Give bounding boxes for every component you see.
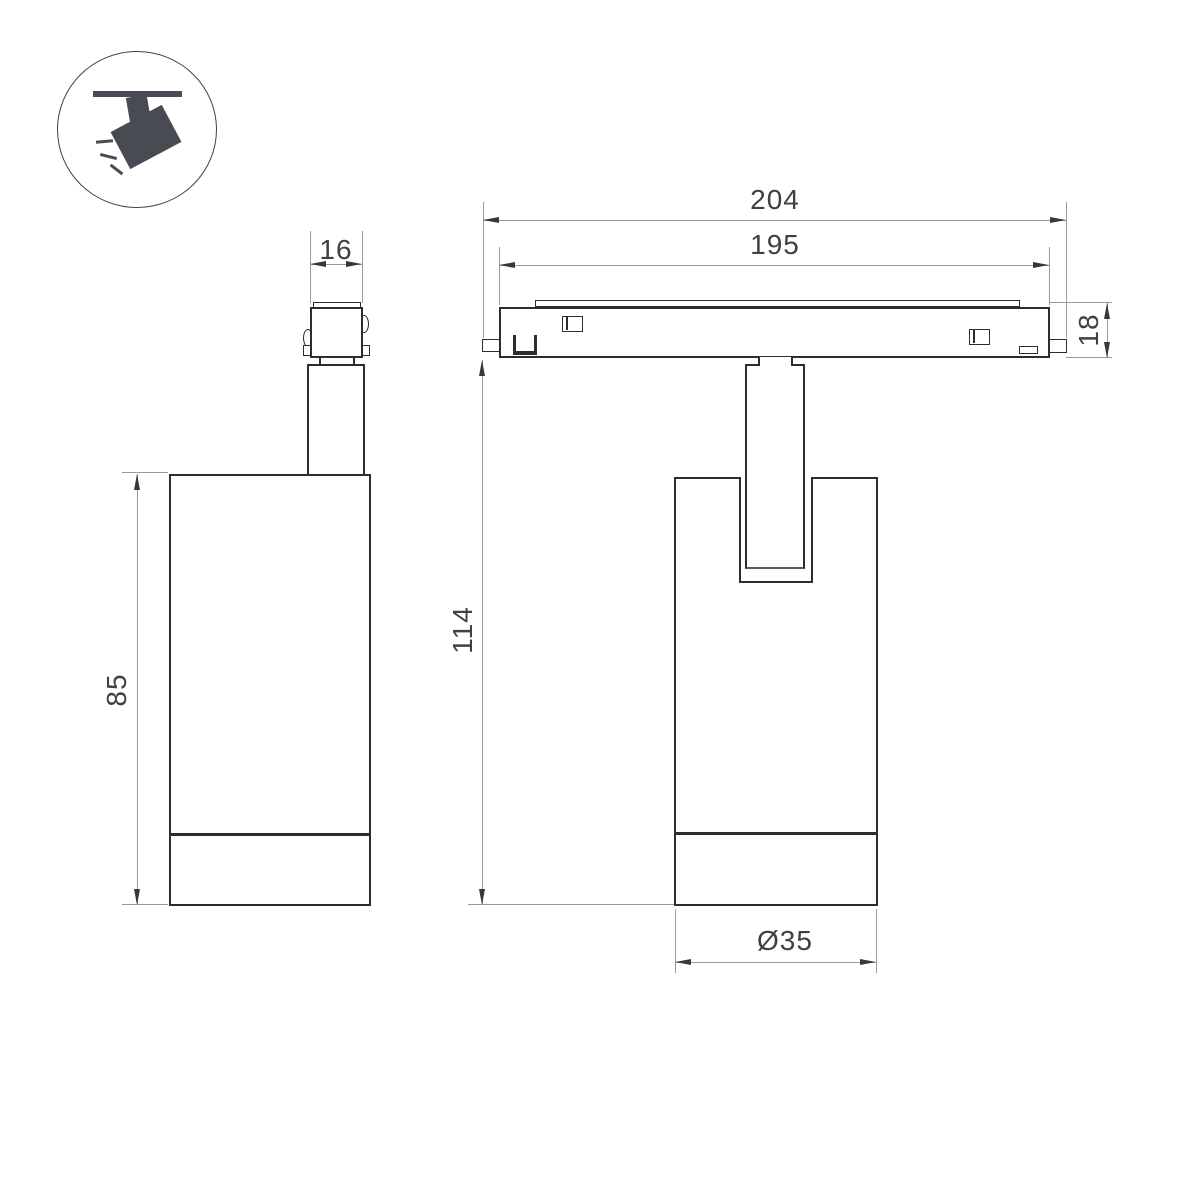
arrowhead bbox=[860, 959, 876, 965]
track-top-plate-side bbox=[535, 300, 1020, 307]
track-u-contact-detail bbox=[513, 335, 537, 355]
arrowhead bbox=[479, 360, 485, 376]
arrowhead bbox=[675, 959, 691, 965]
lamp-body-front bbox=[169, 474, 371, 906]
dimension-line-195 bbox=[499, 265, 1049, 266]
arrowhead bbox=[483, 217, 499, 223]
track-square-detail-left bbox=[562, 316, 583, 332]
track-flat-detail-right bbox=[1019, 346, 1038, 354]
swivel-neck-side bbox=[758, 357, 793, 366]
dimension-line-35 bbox=[675, 962, 876, 963]
dimension-line-85 bbox=[137, 474, 138, 904]
dimension-line-114 bbox=[482, 360, 483, 905]
technical-drawing-canvas: 16 85 204 195 bbox=[0, 0, 1200, 1200]
dim-label-overall-height: 114 bbox=[449, 606, 477, 654]
dim-label-total-length: 204 bbox=[750, 186, 800, 214]
track-adapter-side bbox=[499, 307, 1050, 358]
lamp-body-trim-line bbox=[169, 833, 371, 836]
dim-label-body-height: 85 bbox=[103, 673, 131, 706]
icon-light-ray bbox=[110, 164, 124, 176]
extension-line bbox=[122, 472, 168, 473]
dim-label-body-diameter: Ø35 bbox=[757, 927, 813, 955]
arrowhead bbox=[499, 262, 515, 268]
dim-label-track-height: 18 bbox=[1075, 313, 1103, 346]
track-spotlight-icon bbox=[57, 51, 217, 208]
arm-side bbox=[745, 364, 805, 569]
extension-line bbox=[1049, 247, 1050, 305]
dimension-line-204 bbox=[483, 220, 1066, 221]
extension-line bbox=[876, 909, 877, 973]
arrowhead bbox=[479, 889, 485, 905]
track-connector-front bbox=[310, 307, 363, 358]
lamp-body-trim-line bbox=[674, 832, 878, 835]
detail-inner-line bbox=[973, 330, 975, 343]
arrowhead bbox=[1050, 217, 1066, 223]
track-square-detail-right bbox=[969, 329, 990, 345]
icon-light-ray bbox=[100, 153, 117, 160]
arrowhead bbox=[134, 474, 140, 490]
detail-inner-line bbox=[566, 317, 568, 330]
arrowhead bbox=[1104, 303, 1110, 319]
connector-top-plate-front bbox=[313, 302, 361, 308]
arrowhead bbox=[1033, 262, 1049, 268]
icon-lamp-head bbox=[111, 105, 182, 169]
extension-line bbox=[362, 231, 363, 303]
arrowhead bbox=[134, 889, 140, 905]
dim-label-track-length: 195 bbox=[750, 231, 800, 259]
extension-line bbox=[499, 247, 500, 305]
dim-label-connector-width: 16 bbox=[319, 236, 352, 264]
extension-line bbox=[310, 231, 311, 303]
arrowhead bbox=[1104, 342, 1110, 358]
icon-light-ray bbox=[96, 139, 113, 143]
extension-line bbox=[122, 904, 168, 905]
arm-front bbox=[307, 364, 365, 475]
extension-line bbox=[468, 904, 674, 905]
extension-line bbox=[1066, 202, 1067, 338]
